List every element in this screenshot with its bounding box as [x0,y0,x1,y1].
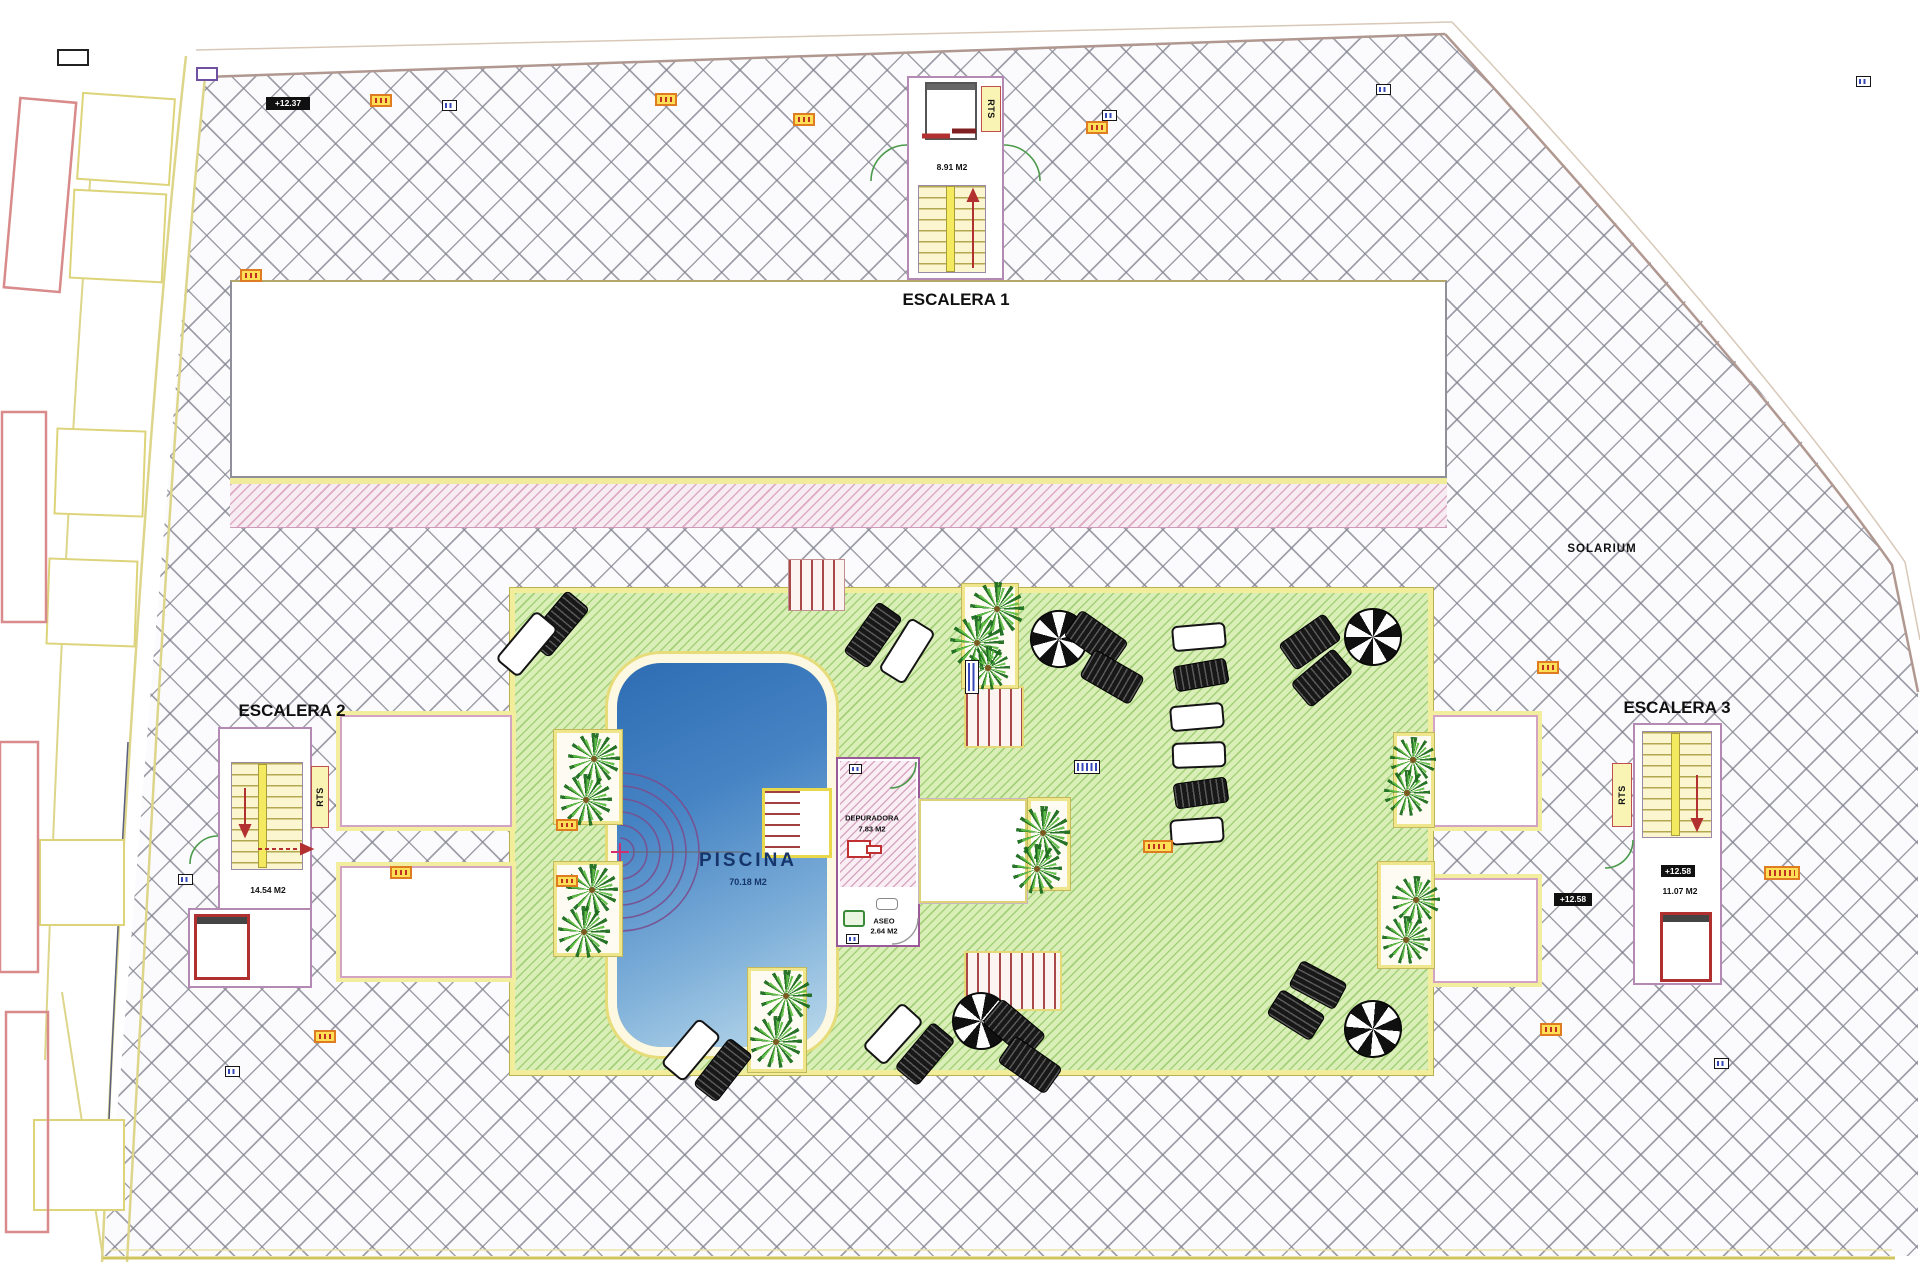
escalera3-label: ESCALERA 3 [1623,698,1730,718]
escalera2-area-label: 14.54 M2 [250,885,285,895]
piscina-area-label: 70.18 M2 [729,877,767,887]
stair-rail-3 [1671,733,1680,836]
rts-label: RTS [986,99,996,119]
roof-void [230,280,1447,478]
tag-blue-icon [225,1066,240,1077]
tag-orange-icon [1537,661,1559,674]
deck-void [340,866,512,978]
plan-stage: RTS RTS RTS +12.37 +12.58 +12.58 ESCALER… [0,0,1920,1280]
level-tag: +12.37 [266,97,310,110]
elevator-3 [1660,912,1712,982]
stair-rail-1 [946,186,955,272]
elevator-door [927,84,975,90]
pool-steps [762,788,832,858]
deck-void [1433,878,1538,983]
tag-blue-icon [442,100,457,111]
stair-rail-2 [258,764,267,868]
tag-blue-icon [1376,84,1391,95]
palm-icon [558,906,610,958]
tag-orange-icon [370,94,392,107]
palm-icon [1012,844,1062,894]
depuradora-label: DEPURADORA [845,814,899,823]
tag-blue-icon [849,764,862,774]
tag-orange-icon [240,269,262,282]
escalera1-area-label: 8.91 M2 [937,162,968,172]
escalera3-area-label: 11.07 M2 [1663,886,1698,896]
lounger-white-icon [1169,702,1225,733]
level-tag: +12.58 [1554,893,1592,906]
palm-icon [1384,770,1430,816]
facade-frames [0,98,76,1232]
tag-blue-icon [1714,1058,1729,1069]
escalera2-label: ESCALERA 2 [238,701,345,721]
tag-orange-icon [793,113,815,126]
tag-orange-icon [1086,121,1108,134]
pump-icon [866,845,882,854]
piscina-label: PISCINA [699,850,797,872]
tag-blue-icon [965,660,979,694]
umbrella-icon [1344,608,1402,666]
tag-orange-icon [556,819,578,831]
level-tag: +12.58 [1661,865,1695,877]
depuradora-area-label: 7.83 M2 [858,825,885,834]
tag-orange-icon [390,866,412,879]
toilet-icon [876,898,898,910]
tag-orange-icon [556,875,578,887]
aseo-area-label: 2.64 M2 [870,927,897,936]
elevator-door [197,917,247,924]
tag-orange-icon [1764,866,1800,880]
rts-shaft-2: RTS [311,766,329,828]
deck-stair-bars [788,559,845,611]
deck-void [340,715,512,827]
palm-icon [750,1016,802,1068]
tag-orange-icon [655,93,677,106]
solarium-label: SOLARIUM [1567,543,1636,555]
tag-orange-icon [314,1030,336,1043]
escalera1-label: ESCALERA 1 [902,290,1009,310]
tag-blue-icon [178,874,193,885]
rts-shaft-1: RTS [981,86,1001,132]
tag-blue-icon [1074,760,1100,774]
tag-blue-icon [1102,110,1117,121]
rts-shaft-3: RTS [1612,763,1632,827]
elevator-2 [194,914,250,980]
tag-orange-icon [1540,1023,1562,1036]
lounger-white-icon [1169,816,1225,846]
deck-void [1433,715,1538,827]
roof-hatch-marker [58,50,88,65]
aseo-label: ASEO [873,917,894,926]
stair-flight-2 [231,762,303,870]
tag-orange-icon [1143,840,1173,853]
lounger-white-icon [1172,741,1227,769]
rts-label: RTS [315,787,325,807]
palm-icon [760,970,812,1022]
rts-label: RTS [1617,785,1627,805]
shade-opening [919,799,1027,903]
elevator-1 [925,82,977,140]
south-wall-band [230,478,1447,528]
lounger-white-icon [1171,622,1227,653]
elevator-door [1663,915,1709,922]
tag-blue-icon [1856,76,1871,87]
tag-blue-icon [846,934,859,944]
palm-icon [1382,916,1430,964]
pergola-walkway [964,686,1024,748]
washbasin-icon [843,910,865,927]
